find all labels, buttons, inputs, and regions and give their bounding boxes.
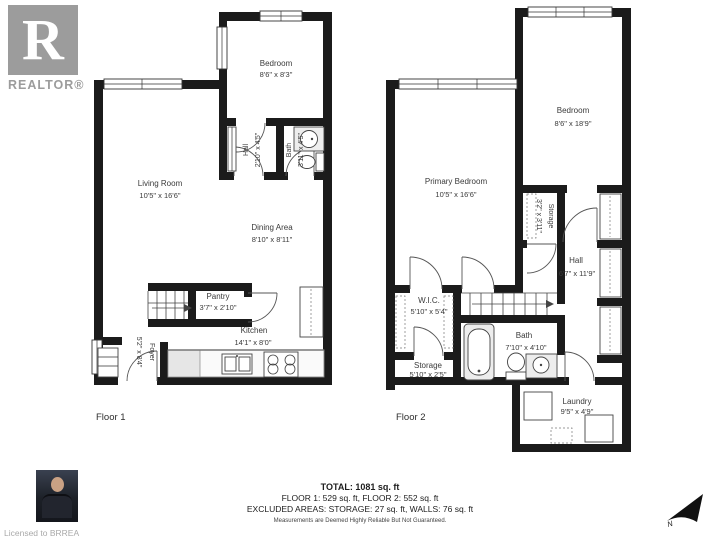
floor-plan-canvas: Bedroom 8'6" x 8'3" Living Room 10'5" x … [0, 0, 720, 540]
agent-photo [36, 470, 78, 522]
room-name-bedroom-f1: Bedroom [260, 59, 293, 68]
fridge-icon [300, 287, 323, 337]
room-dims-bedroom-f1: 8'6" x 8'3" [260, 70, 293, 79]
room-name-kitchen: Kitchen [241, 326, 268, 335]
bathroom2-fixtures [464, 324, 557, 380]
room-name-storage2: Storage [414, 361, 443, 370]
disclaimer: Measurements are Deemed Highly Reliable … [160, 518, 560, 524]
toilet-icon [316, 153, 324, 171]
stairs-floor2 [461, 293, 557, 315]
room-name-pantry: Pantry [206, 292, 229, 301]
room-dims-dining: 8'10" x 8'11" [252, 235, 293, 244]
stairs-floor1 [148, 291, 192, 319]
floor2-labels: Primary Bedroom 10'5" x 16'6" Bedroom 8'… [410, 106, 596, 416]
floor2-walls [386, 8, 631, 452]
washer-icon [524, 392, 552, 420]
room-name-storage1: Storage [547, 204, 554, 229]
room-name-living: Living Room [138, 179, 183, 188]
north-label: N [666, 519, 674, 529]
room-name-wic: W.I.C. [418, 296, 440, 305]
room-name-hall-f1: Hall [243, 144, 250, 157]
floor1-label: Floor 1 [96, 412, 126, 423]
room-name-foyer: Foyer [148, 343, 155, 362]
agent-photo-body [42, 494, 72, 518]
licensed-text: Licensed to BRREA [4, 528, 79, 538]
floor1-walls [94, 12, 332, 385]
room-dims-living: 10'5" x 16'6" [139, 191, 180, 200]
floor-areas: FLOOR 1: 529 sq. ft, FLOOR 2: 552 sq. ft [160, 493, 560, 503]
floor2-label: Floor 2 [396, 412, 426, 423]
dryer-icon [585, 415, 613, 442]
room-dims-bedroom-f2: 8'6" x 18'9" [555, 119, 592, 128]
room-name-dining: Dining Area [251, 223, 293, 232]
toilet2-icon [508, 353, 525, 371]
floor2-windows [399, 7, 612, 89]
room-name-laundry: Laundry [563, 397, 592, 406]
room-dims-wic: 5'10" x 5'4" [411, 307, 448, 316]
realtor-logo: R REALTOR® [8, 5, 88, 92]
room-dims-foyer: 5'2" x 8'4" [135, 337, 142, 368]
excluded-areas: EXCLUDED AREAS: STORAGE: 27 sq. ft, WALL… [160, 504, 560, 514]
room-dims-bath-f2: 7'10" x 4'10" [505, 343, 546, 352]
room-dims-laundry: 9'5" x 4'9" [561, 407, 594, 416]
floorplan-page: Bedroom 8'6" x 8'3" Living Room 10'5" x … [0, 0, 720, 540]
room-name-bedroom-f2: Bedroom [557, 106, 590, 115]
room-dims-kitchen: 14'1" x 8'0" [235, 338, 272, 347]
agent-photo-head [51, 477, 64, 492]
realtor-logo-mark: R [8, 5, 78, 75]
room-dims-hall-f2: 6'7" x 11'9" [559, 269, 596, 278]
room-dims-hall-f1: 2'10" x 4'5" [255, 132, 262, 167]
room-name-bath-f2: Bath [516, 331, 532, 340]
room-dims-storage1: 3'2" x 3'11" [535, 199, 542, 233]
realtor-logo-letter: R [22, 11, 64, 69]
floor1-plan: Bedroom 8'6" x 8'3" Living Room 10'5" x … [92, 11, 332, 423]
total-area: TOTAL: 1081 sq. ft [160, 482, 560, 492]
room-name-hall-f2: Hall [569, 256, 583, 265]
room-name-bath-f1: Bath [286, 143, 293, 158]
hall-closet [228, 127, 236, 171]
north-arrow-icon: N [666, 494, 703, 529]
floor2-doors [410, 208, 597, 381]
room-dims-bath-f1: 3'11" x 4'5" [298, 132, 305, 166]
foyer-closet [98, 348, 118, 377]
room-dims-primary: 10'5" x 16'6" [435, 190, 476, 199]
room-dims-storage2: 5'10" x 2'5" [410, 370, 447, 379]
room-dims-pantry: 3'7" x 2'10" [200, 303, 237, 312]
floor2-plan: Primary Bedroom 10'5" x 16'6" Bedroom 8'… [386, 7, 631, 452]
realtor-logo-word: REALTOR® [8, 78, 88, 92]
area-summary: TOTAL: 1081 sq. ft FLOOR 1: 529 sq. ft, … [160, 482, 560, 524]
room-name-primary: Primary Bedroom [425, 177, 488, 186]
